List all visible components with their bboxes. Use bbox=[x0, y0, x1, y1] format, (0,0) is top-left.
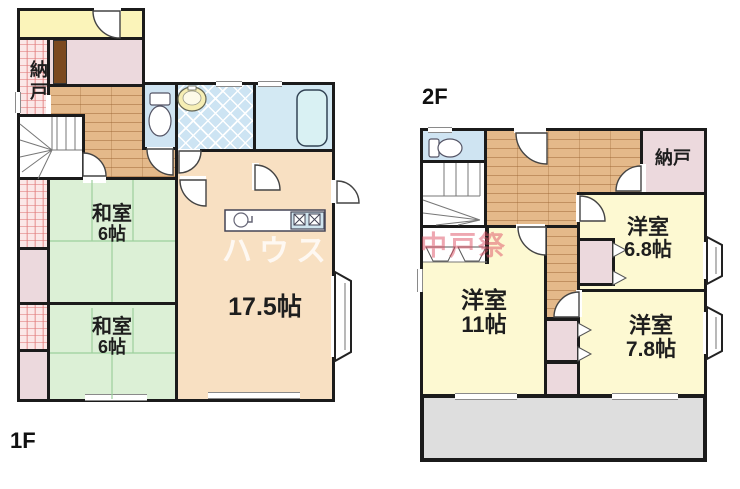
door-opening bbox=[576, 195, 582, 222]
window bbox=[208, 392, 300, 399]
balcony bbox=[420, 394, 707, 462]
window bbox=[417, 269, 423, 292]
closet-mid-upper bbox=[544, 318, 580, 363]
window bbox=[455, 393, 517, 400]
closet-mid-lower bbox=[544, 361, 580, 397]
window bbox=[258, 81, 282, 87]
closet-oshiire-1 bbox=[17, 177, 50, 250]
closet-plain-1 bbox=[17, 247, 50, 305]
label-storage-2f: 納戸 bbox=[644, 149, 702, 169]
door-opening bbox=[94, 8, 121, 15]
door-opening bbox=[576, 290, 582, 317]
door-opening bbox=[178, 149, 200, 155]
label-ldk: 17.5帖 bbox=[195, 294, 335, 322]
window bbox=[216, 81, 242, 87]
staircase-2f bbox=[420, 160, 487, 228]
floor-label-1f: 1F bbox=[10, 428, 36, 454]
window bbox=[428, 127, 452, 133]
watermark-branch: 中戸祭 bbox=[420, 224, 507, 263]
hallway-2f-strip bbox=[544, 225, 580, 320]
door-opening bbox=[180, 176, 206, 183]
staircase-1f bbox=[17, 114, 85, 182]
label-western-11: 洋室 11帖 bbox=[428, 288, 540, 337]
room-toilet-2f bbox=[420, 128, 487, 163]
door-opening bbox=[83, 176, 106, 183]
label-western-68: 洋室 6.8帖 bbox=[592, 216, 704, 261]
floor-label-2f: 2F bbox=[422, 84, 448, 110]
room-entrance bbox=[17, 8, 145, 40]
watermark-company: ハウス bbox=[222, 226, 333, 270]
label-storage-1f: 納戸 bbox=[19, 50, 47, 114]
label-western-78: 洋室 7.8帖 bbox=[593, 314, 709, 361]
closet-plain-2 bbox=[17, 349, 50, 402]
floor-plan: 1F 2F 納戸 和室 6帖 和室 6帖 17.5帖 納戸 洋室 6.8帖 洋室… bbox=[0, 0, 740, 489]
closet-oshiire-2 bbox=[17, 302, 50, 352]
window-opening bbox=[514, 128, 546, 133]
door-opening bbox=[147, 147, 173, 153]
bay-window-opening bbox=[703, 242, 710, 279]
shoe-cabinet bbox=[53, 40, 67, 84]
label-japanese-room-1: 和室 6帖 bbox=[62, 203, 162, 245]
door-opening bbox=[516, 224, 545, 230]
label-japanese-room-2: 和室 6帖 bbox=[62, 316, 162, 358]
room-toilet-1f bbox=[142, 82, 178, 150]
room-bath bbox=[253, 82, 335, 152]
window bbox=[85, 394, 147, 401]
window bbox=[612, 393, 678, 400]
room-washroom bbox=[175, 82, 256, 152]
door-opening bbox=[252, 163, 259, 190]
door-opening bbox=[331, 180, 338, 203]
